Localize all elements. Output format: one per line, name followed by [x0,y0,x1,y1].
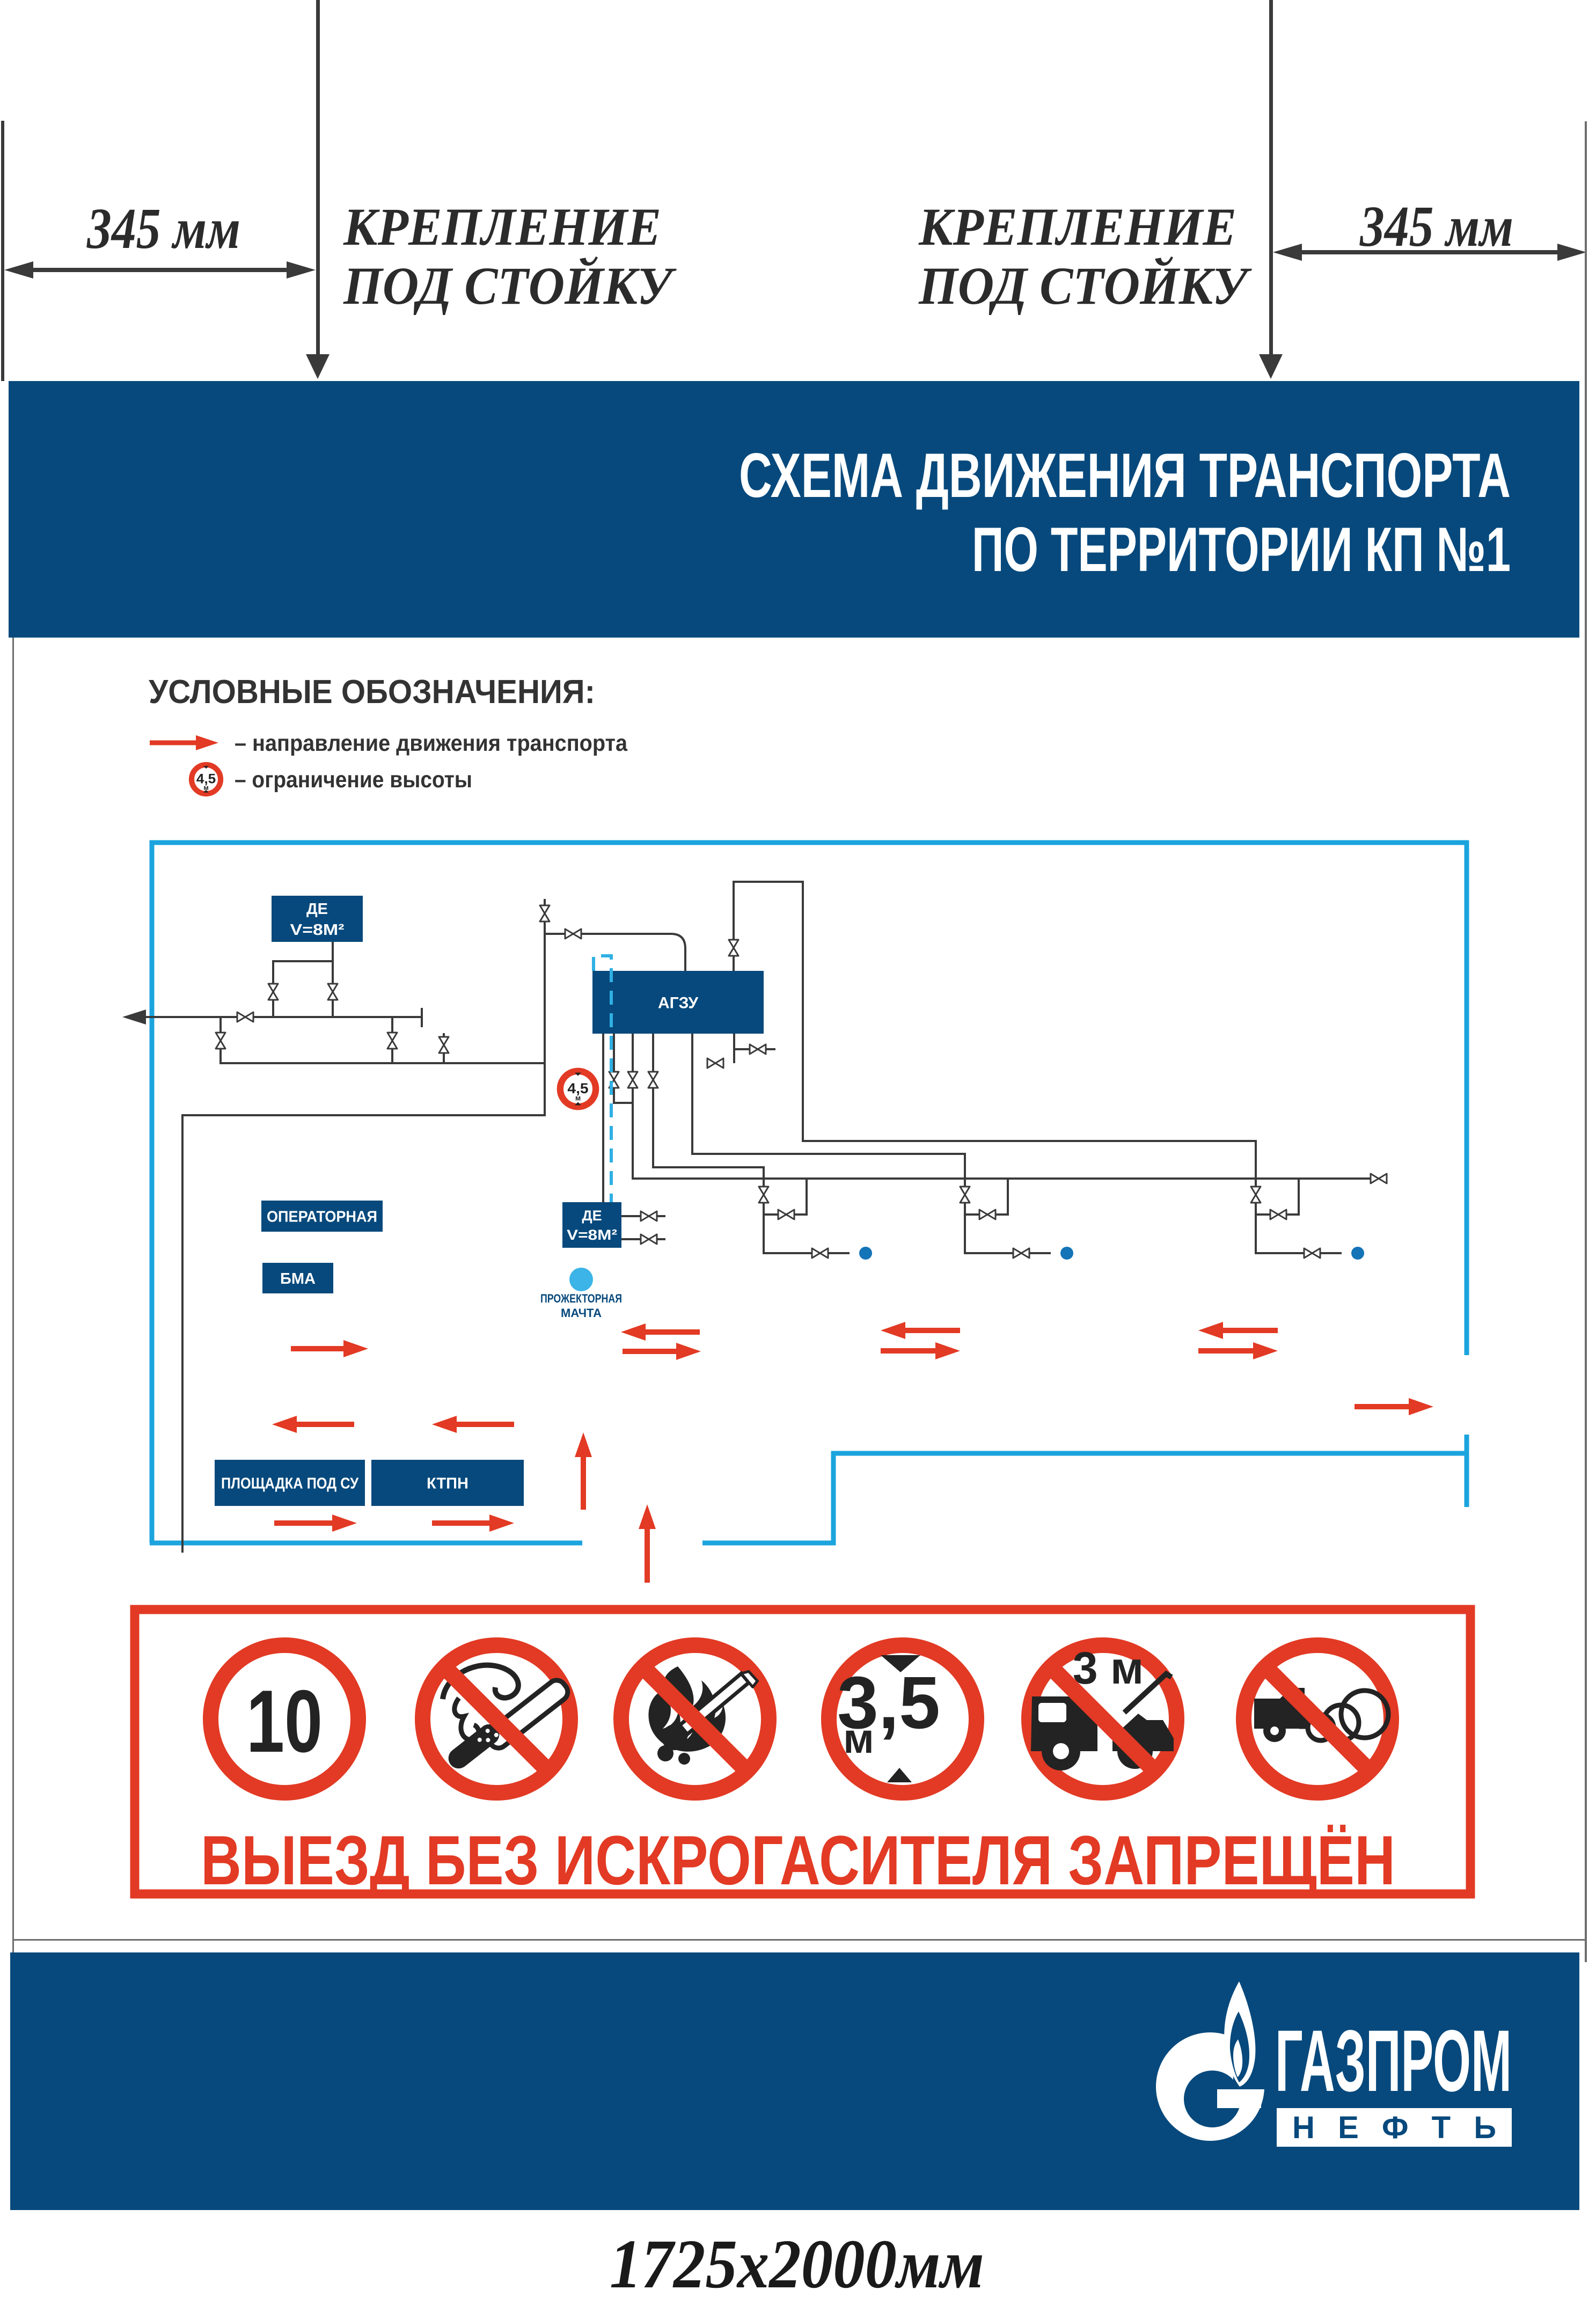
svg-text:КРЕПЛЕНИЕ: КРЕПЛЕНИЕ [343,197,661,257]
svg-text:ВЫЕЗД БЕЗ ИСКРОГАСИТЕЛЯ ЗАПРЕЩ: ВЫЕЗД БЕЗ ИСКРОГАСИТЕЛЯ ЗАПРЕЩЁН [201,1821,1395,1899]
svg-text:ГАЗПРОМ: ГАЗПРОМ [1275,2011,1512,2110]
svg-text:ПОД СТОЙКУ: ПОД СТОЙКУ [343,256,677,316]
svg-text:ОПЕРАТОРНАЯ: ОПЕРАТОРНАЯ [267,1208,377,1225]
svg-text:СХЕМА ДВИЖЕНИЯ ТРАНСПОРТА: СХЕМА ДВИЖЕНИЯ ТРАНСПОРТА [739,440,1511,510]
svg-text:ДЕ: ДЕ [306,901,328,918]
svg-text:КРЕПЛЕНИЕ: КРЕПЛЕНИЕ [918,197,1236,257]
svg-text:V=8М²: V=8М² [567,1227,617,1243]
svg-text:м: м [575,1093,581,1102]
svg-text:МАЧТА: МАЧТА [561,1306,602,1320]
svg-text:1725x2000мм: 1725x2000мм [610,2226,984,2294]
svg-text:3 м: 3 м [1073,1643,1144,1693]
svg-text:ДЕ: ДЕ [582,1208,602,1224]
svg-text:КТПН: КТПН [427,1475,468,1492]
svg-text:345 мм: 345 мм [86,197,240,261]
svg-text:10: 10 [246,1672,323,1771]
svg-text:Н Е Ф Т Ь: Н Е Ф Т Ь [1292,2110,1496,2145]
svg-text:ПРОЖЕКТОРНАЯ: ПРОЖЕКТОРНАЯ [540,1292,622,1305]
svg-text:м: м [843,1715,874,1762]
svg-text:345 мм: 345 мм [1359,195,1513,259]
svg-text:V=8М²: V=8М² [290,921,345,939]
svg-text:УСЛОВНЫЕ ОБОЗНАЧЕНИЯ:: УСЛОВНЫЕ ОБОЗНАЧЕНИЯ: [149,674,595,711]
svg-text:АГЗУ: АГЗУ [658,994,698,1012]
svg-text:БМА: БМА [280,1270,316,1288]
svg-text:ПЛОЩАДКА ПОД СУ: ПЛОЩАДКА ПОД СУ [221,1475,359,1492]
svg-text:– ограничение высоты: – ограничение высоты [235,767,472,793]
svg-text:ПО ТЕРРИТОРИИ КП №1: ПО ТЕРРИТОРИИ КП №1 [972,514,1511,584]
svg-text:ПОД СТОЙКУ: ПОД СТОЙКУ [918,256,1252,316]
svg-text:– направление движения транспо: – направление движения транспорта [235,730,628,756]
